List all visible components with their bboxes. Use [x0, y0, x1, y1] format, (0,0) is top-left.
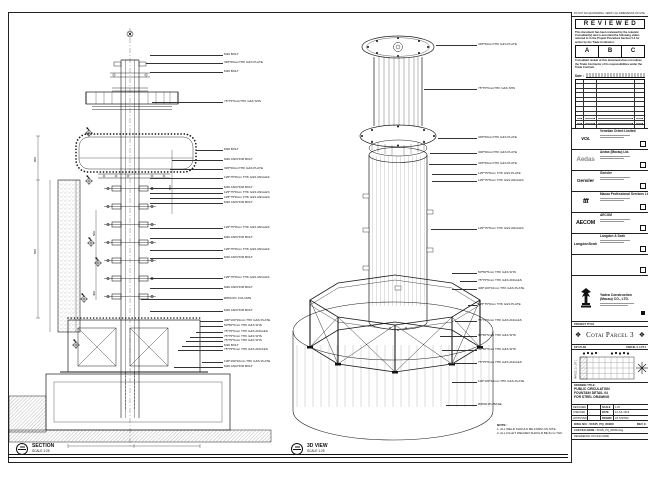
- callout-label: 125*75*8mm THK G&S PLATE: [478, 303, 521, 306]
- leader-line: [182, 346, 223, 347]
- callout-label: M20 ANCHOR BOLT: [224, 365, 253, 368]
- consultant-logo: ttt: [572, 192, 599, 212]
- consultant-logo: [572, 255, 599, 275]
- leader-line: [202, 362, 223, 363]
- leader-line: [172, 160, 223, 161]
- rev-badge: REV C: [637, 421, 646, 427]
- leader-line: [186, 341, 223, 342]
- leader-line: [150, 203, 223, 204]
- leader-line: [150, 193, 223, 194]
- leader-line: [150, 311, 223, 312]
- callout-label: Ø3500 RC BASE: [478, 403, 502, 406]
- cad-file-label: CAD FILE NAME :: [574, 429, 596, 432]
- leader-line: [442, 350, 477, 351]
- status-abc-row: A B C: [575, 45, 645, 58]
- sign-scale-table: DESIGNEDSCALE1:25CHECKED-DATE14 JUL 2015…: [572, 405, 648, 421]
- 3d-detail-bubble: [291, 443, 303, 455]
- consultant-row: LangdonSeahLangdon & Seah: [572, 234, 648, 255]
- 3d-view-geometry: [293, 36, 493, 440]
- leader-line: [430, 153, 477, 154]
- leader-line: [448, 363, 477, 364]
- callout-label: 400*100*10mm THK G&S PLATE: [478, 287, 524, 290]
- leader-line: [170, 169, 223, 170]
- callout-label: Ø350 RC COLUMN: [224, 297, 251, 300]
- leader-line: [150, 238, 223, 239]
- consultant-name: Langdon & Seah: [600, 235, 646, 239]
- leader-line: [178, 350, 223, 351]
- title-block-cell: APPROVED: [572, 416, 588, 420]
- callout-label: 125*75*8mm THK G&S ANGLES: [224, 196, 270, 199]
- contractor-logo: [572, 287, 599, 309]
- key-plan-side-label: PARCEL 3, LOT 1: [575, 359, 578, 379]
- key-plan: KEY PLAN PARCEL 3, LOT 2 PARCEL 3, LOT 1: [572, 345, 648, 383]
- callout-label: M20 ANCHOR BOLT: [224, 286, 253, 289]
- bottom-rule-1: [8, 454, 568, 455]
- consultant-address-line: [600, 240, 630, 241]
- callout-label: 300*50mmTHK G&S PLATE: [478, 151, 517, 154]
- callout-label: M20 BOLT: [224, 53, 239, 56]
- drawing-sheet-page: M20 BOLT345*50mmTHK G&S PLATEM20 BOLT75*…: [0, 0, 650, 488]
- consultant-address-line: [600, 221, 624, 222]
- key-plan-lot: PARCEL 3, LOT 2: [626, 345, 646, 349]
- callout-label: 125*75*8mm THK G&S ANGLES: [224, 226, 270, 229]
- title-block-cell: DRAWN: [601, 416, 614, 420]
- consultant-address-line: [600, 198, 630, 199]
- callout-label: 345*50mmTHK G&S PLATE: [478, 43, 517, 46]
- callout-label: 75*75*6mmTHK G&S SHS: [224, 100, 261, 103]
- consultant-name: Macau Professional Services Ltd.: [600, 193, 646, 197]
- callout-label: M20 ANCHOR BOLT: [224, 158, 253, 161]
- consultant-address-line: [600, 200, 624, 201]
- consultant-name: Venetian Orient Limited: [600, 130, 646, 134]
- callout-label: M20 ANCHOR BOLT: [224, 201, 253, 204]
- title-block-cell: CHECKED: [572, 410, 588, 414]
- consultant-row: [572, 255, 648, 276]
- contractor-mark: [641, 311, 645, 315]
- consultant-address-line: [600, 135, 630, 136]
- callout-label: 50*50*5mm THK G&S SHS: [478, 271, 516, 274]
- callout-label: 50*50*5mm THK G&S SHS: [478, 348, 516, 351]
- review-paragraph-2: Consultant review of this document does …: [575, 59, 645, 69]
- title-block-cell: DATE: [601, 410, 614, 414]
- consultant-row: tttMacau Professional Services Ltd.: [572, 192, 648, 213]
- reviewed-title: R E V I E W E D: [575, 19, 645, 30]
- status-c[interactable]: C: [622, 46, 644, 57]
- bottom-rule-2: [8, 457, 568, 458]
- title-block-panel: DO NOT SCALE DRAWING. VERIFY ALL DIMENSI…: [571, 12, 648, 463]
- callout-label: 345*50mmTHK G&S PLATE: [478, 136, 517, 139]
- cad-file-value: 51535_PQ_80000.dwg: [597, 429, 624, 432]
- contractor-address-line: [600, 305, 628, 306]
- notes-block: NOTE: 1. ALL WELD SHOULD BE FORM ON SITE…: [497, 424, 563, 435]
- title-block-cell: SCALE: [601, 405, 614, 409]
- signoff-checkbox[interactable]: [640, 267, 646, 273]
- leader-line: [150, 258, 223, 259]
- signoff-checkbox[interactable]: [640, 141, 646, 147]
- callout-label: 345*50mmTHK G&S PLATE: [224, 167, 263, 170]
- title-block-cell: DESIGNED: [572, 405, 588, 409]
- leader-line: [431, 229, 477, 230]
- leader-line: [150, 278, 223, 279]
- callout-label: 75*75*6mm THK G&S ANGLES: [224, 348, 268, 351]
- consultant-logo: Gensler: [572, 171, 599, 191]
- leader-line: [460, 281, 477, 282]
- leader-line: [150, 188, 223, 189]
- dimension-text: 500: [93, 231, 96, 236]
- consultant-row: GenslerGensler: [572, 171, 648, 192]
- project-title: Cotai Parcel 3: [586, 331, 634, 339]
- callout-label: 75*75*6mm THK G&S ANGLES: [224, 330, 268, 333]
- leader-line: [150, 250, 223, 251]
- note-line-2: 2. ALL FILLET WELDED SHOULD BE 6mm THK.: [497, 432, 563, 436]
- title-block-cell: AS SHOWN: [614, 416, 648, 420]
- leader-line: [152, 102, 223, 103]
- callout-label: 345*50mmTHK G&S PLATE: [224, 61, 263, 64]
- leader-line: [174, 367, 223, 368]
- leader-line: [440, 336, 477, 337]
- consultant-logo: VOL: [572, 129, 599, 149]
- consultant-logo: AECOM: [572, 213, 599, 233]
- leader-line: [468, 305, 477, 306]
- callout-label: 100*100*10mm THK G&S PLATE: [478, 380, 524, 383]
- leader-line: [196, 332, 223, 333]
- signoff-checkbox[interactable]: [640, 204, 646, 210]
- signoff-checkbox[interactable]: [640, 246, 646, 252]
- leader-line: [150, 178, 223, 179]
- leader-line: [429, 164, 477, 165]
- consultant-address-line: [600, 219, 630, 220]
- callout-label: 50*50*5mm THK G&S SHS: [478, 334, 516, 337]
- title-block-cell: -: [588, 416, 601, 420]
- callout-label: 75*75*6mm THK G&S ANGLES: [478, 361, 522, 364]
- project-title-row: ❖ Cotai Parcel 3 ❖: [572, 327, 648, 345]
- signoff-checkbox[interactable]: [640, 183, 646, 189]
- title-block-cell: 1:25: [614, 405, 648, 409]
- review-paragraph-1: This document has been reviewed by the r…: [575, 31, 645, 44]
- callout-label: 125*75*8mm THK G&S ANGLES: [224, 176, 270, 179]
- callout-label: 50*50*5mm THK G&S SHS: [224, 324, 262, 327]
- callout-label: 100*100*10mm THK G&S PLATE: [224, 360, 270, 363]
- leader-line: [150, 228, 223, 229]
- callout-label: 75*75*6mm THK G&S ANGLES: [478, 279, 522, 282]
- title-block-cell: [588, 405, 601, 409]
- leader-line: [432, 174, 477, 175]
- ornament-icon: ❖: [575, 332, 581, 339]
- 3d-view-scale: SCALE 1:25: [307, 450, 325, 453]
- drawing-canvas: [0, 0, 650, 488]
- callout-label: M20 ANCHOR BOLT: [224, 186, 253, 189]
- callout-label: 125*75*8mm THK G&S ANGLES: [224, 276, 270, 279]
- leader-line: [446, 405, 477, 406]
- leader-line: [452, 289, 477, 290]
- leader-line: [150, 288, 223, 289]
- callout-label: 125*75*8mm THK G&S ANGLES: [224, 248, 270, 251]
- section-view-scale: SCALE 1:25: [32, 450, 50, 453]
- review-stamp: R E V I E W E D This document has been r…: [572, 17, 648, 129]
- callout-label: 75*75*6mmTHK G&S SHS: [478, 87, 515, 90]
- leader-line: [190, 337, 223, 338]
- leader-line: [200, 326, 223, 327]
- consultant-address-line: [600, 158, 624, 159]
- contractor-block: Yadea Construction (Macau) CO., LTD.: [572, 276, 648, 322]
- reference-row: REFERENCE ON FILE NAME: [572, 434, 648, 440]
- leader-line: [150, 72, 223, 73]
- key-plan-map: PARCEL 3, LOT 1: [572, 350, 648, 383]
- consultant-logo: Aedas: [572, 150, 599, 170]
- signoff-checkbox[interactable]: [640, 225, 646, 231]
- contractor-name-2: (Macau) CO., LTD.: [600, 298, 646, 302]
- callout-label: 345*50mmTHK G&S PLATE: [478, 162, 517, 165]
- dimension-text: 500: [34, 249, 37, 254]
- leader-line: [438, 138, 477, 139]
- consultant-address-line: [600, 242, 624, 243]
- consultant-address-line: [600, 179, 624, 180]
- callout-label: 75*75*6mm THK G&S ANGLES: [478, 319, 522, 322]
- consultant-name: AECOM: [600, 214, 646, 218]
- leader-line: [196, 150, 223, 151]
- consultant-name: Gensler: [600, 172, 646, 176]
- callout-label: 400*100*10mm THK G&S PLATE: [224, 319, 270, 322]
- leader-line: [436, 45, 477, 46]
- title-block-cell: -: [588, 410, 601, 414]
- dwg-no-row: DWG NO : 51535_PQ_80000 REV C: [572, 421, 648, 428]
- dwg-no-label: DWG NO :: [574, 422, 589, 426]
- dimension-text: 400: [93, 291, 96, 296]
- revision-table: [575, 79, 645, 129]
- callout-label: M20 BOLT: [224, 70, 239, 73]
- callout-label: 125*75*8mm THK G&S ANGLES: [478, 179, 524, 182]
- callout-label: 75*75*6mm THK G&S SHS: [224, 339, 262, 342]
- consultant-logo: LangdonSeah: [572, 234, 599, 254]
- leader-line: [141, 299, 223, 300]
- key-plan-label: KEY PLAN: [574, 345, 586, 349]
- leader-line: [432, 181, 477, 182]
- leader-line: [452, 382, 477, 383]
- consultant-address-line: [600, 177, 630, 178]
- consultant-row: AedasAedas (Macau) Ltd.: [572, 150, 648, 171]
- callout-label: M20 ANCHOR BOLT: [224, 236, 253, 239]
- date-row: Date :: [575, 71, 645, 78]
- dimension-text: 800: [34, 157, 37, 162]
- leader-line: [146, 63, 223, 64]
- leader-line: [150, 198, 223, 199]
- date-fill-line[interactable]: [586, 73, 645, 78]
- consultant-signoff-list: VOLVenetian Orient LimitedAedasAedas (Ma…: [572, 129, 648, 276]
- status-a[interactable]: A: [576, 46, 599, 57]
- dwg-no-value: 51535_PQ_80000: [589, 422, 613, 426]
- callout-label: 125*75*8mm THK G&S ANGLES: [478, 227, 524, 230]
- title-block-cell: 14 JUL 2015: [614, 410, 648, 414]
- callout-label: 125*75*8mm THK G&S PLATE: [478, 172, 521, 175]
- consultant-row: AECOMAECOM: [572, 213, 648, 234]
- leader-line: [455, 321, 477, 322]
- drawing-title-line-3: FOR STEEL DRAWING: [574, 395, 646, 399]
- callout-label: M20 ANCHOR BOLT: [224, 256, 253, 259]
- leader-line: [424, 89, 477, 90]
- callout-label: 125*75*8mm THK G&S ANGLES: [224, 191, 270, 194]
- callout-label: M20 BOLT: [224, 148, 239, 151]
- date-label: Date :: [575, 74, 584, 78]
- status-b[interactable]: B: [599, 46, 622, 57]
- ornament-icon: ❖: [639, 332, 645, 339]
- contractor-address-line: [600, 303, 634, 304]
- callout-label: M20 ANCHOR BOLT: [224, 309, 253, 312]
- leader-line: [452, 273, 477, 274]
- leader-line: [150, 55, 223, 56]
- signoff-checkbox[interactable]: [640, 162, 646, 168]
- dimension-text: 500: [169, 185, 172, 190]
- drawing-title-block: DRAWING TITLE: PUBLIC CIRCULATION FOUNTA…: [572, 383, 648, 405]
- consultant-address-line: [600, 156, 630, 157]
- consultant-row: VOLVenetian Orient Limited: [572, 129, 648, 150]
- consultant-name: Aedas (Macau) Ltd.: [600, 151, 646, 155]
- section-detail-bubble: [16, 443, 28, 455]
- leader-line: [200, 321, 223, 322]
- consultant-address-line: [600, 137, 624, 138]
